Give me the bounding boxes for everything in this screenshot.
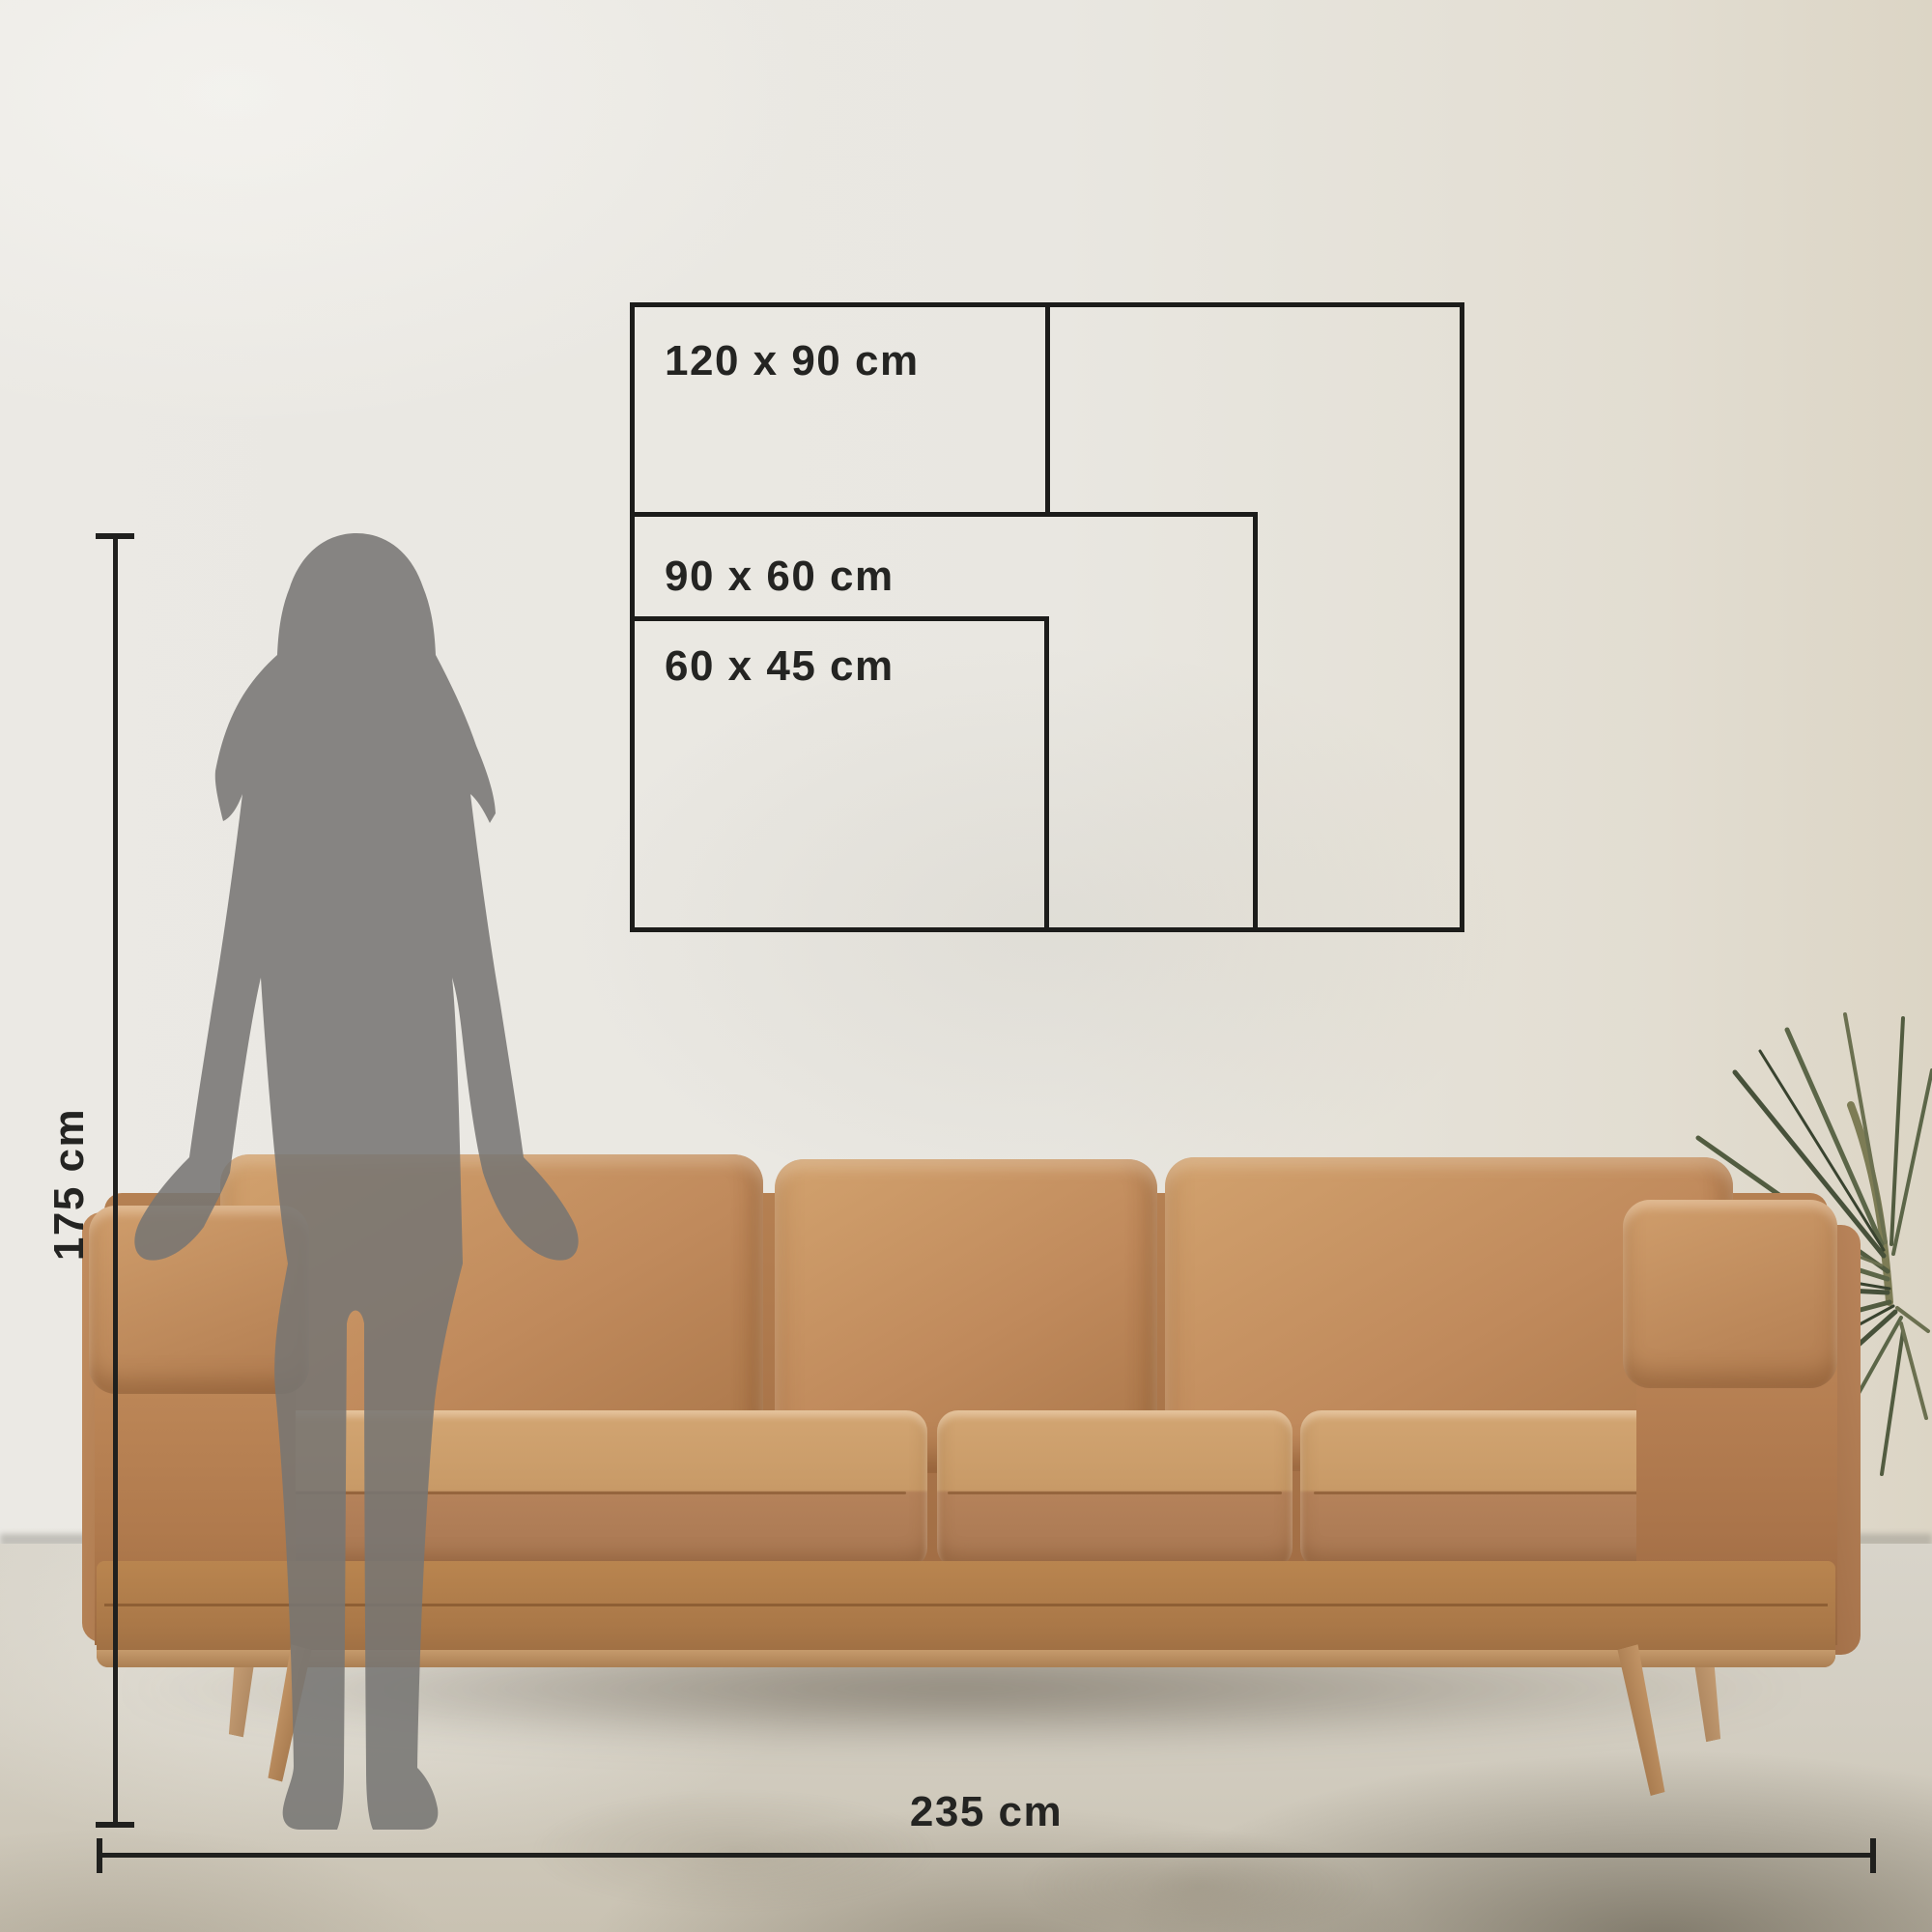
size-label-60x45: 60 x 45 cm [665,645,895,688]
size-label-120x90: 120 x 90 cm [665,340,920,383]
width-measure-label: 235 cm [870,1791,1102,1833]
woman-silhouette [133,531,580,1832]
height-measure-cap-top [96,533,134,539]
sofa-right-arm-cushion [1623,1200,1837,1388]
sofa-seat-cushion [937,1410,1293,1569]
height-measure-line [113,535,118,1826]
size-box-divider-line [1045,302,1050,517]
width-measure-cap-right [1870,1838,1876,1873]
height-measure-label: 175 cm [48,1107,91,1262]
width-measure-line [99,1853,1875,1858]
height-measure-cap-bottom [96,1822,134,1828]
width-measure-cap-left [97,1838,102,1873]
living-room-scene: 120 x 90 cm 90 x 60 cm 60 x 45 cm 175 cm… [0,0,1932,1932]
size-label-90x60: 90 x 60 cm [665,555,895,598]
